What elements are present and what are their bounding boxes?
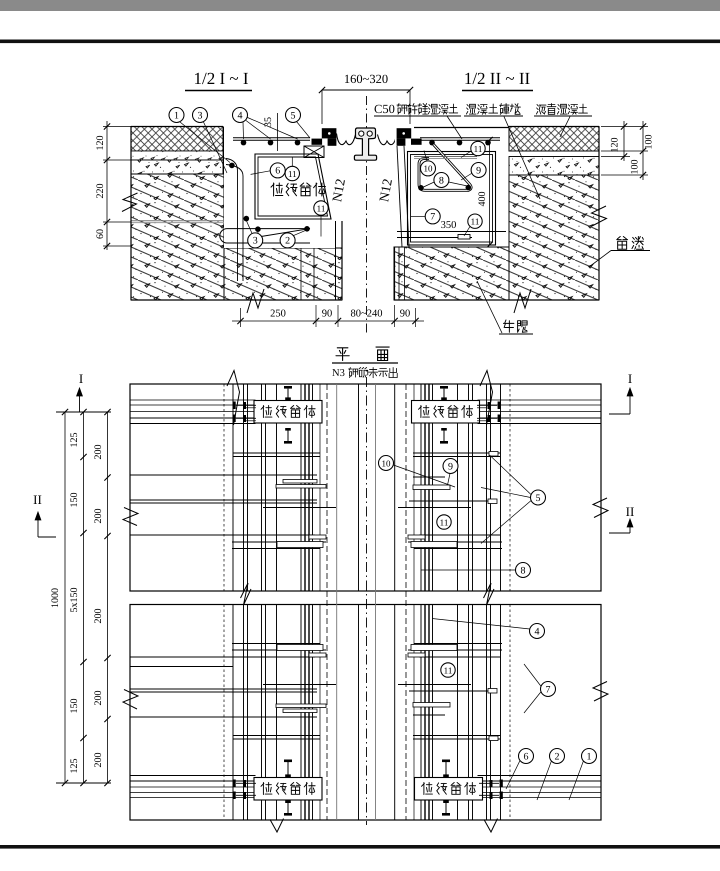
svg-text:125: 125 bbox=[69, 759, 80, 774]
svg-text:120: 120 bbox=[95, 136, 106, 151]
svg-text:11: 11 bbox=[440, 517, 449, 527]
svg-text:N12: N12 bbox=[376, 177, 395, 203]
svg-text:250: 250 bbox=[270, 309, 286, 320]
svg-text:6: 6 bbox=[275, 166, 280, 177]
svg-text:10: 10 bbox=[424, 164, 434, 174]
svg-text:5: 5 bbox=[291, 110, 296, 121]
svg-text:1/2 II ~ II: 1/2 II ~ II bbox=[464, 69, 531, 88]
svg-text:160~320: 160~320 bbox=[344, 72, 388, 86]
svg-text:9: 9 bbox=[476, 165, 481, 176]
svg-text:100: 100 bbox=[644, 135, 655, 150]
svg-text:7: 7 bbox=[546, 684, 551, 695]
svg-text:8: 8 bbox=[439, 175, 444, 186]
svg-text:11: 11 bbox=[471, 217, 480, 227]
svg-text:4: 4 bbox=[535, 626, 540, 637]
svg-text:2: 2 bbox=[555, 751, 560, 762]
svg-text:90: 90 bbox=[400, 309, 411, 320]
svg-text:10: 10 bbox=[382, 458, 392, 468]
svg-text:200: 200 bbox=[93, 445, 104, 460]
svg-text:35: 35 bbox=[263, 117, 274, 127]
svg-text:80~240: 80~240 bbox=[351, 309, 383, 320]
svg-text:11: 11 bbox=[474, 144, 483, 154]
svg-text:200: 200 bbox=[93, 753, 104, 768]
svg-text:400: 400 bbox=[477, 192, 488, 207]
svg-text:3: 3 bbox=[253, 236, 258, 247]
svg-text:N12: N12 bbox=[329, 177, 348, 203]
svg-text:5: 5 bbox=[536, 493, 541, 504]
svg-text:II: II bbox=[33, 492, 42, 507]
svg-text:I: I bbox=[628, 371, 632, 386]
svg-text:C50: C50 bbox=[374, 102, 395, 116]
svg-text:150: 150 bbox=[69, 493, 80, 508]
svg-text:4: 4 bbox=[238, 110, 243, 121]
svg-text:1: 1 bbox=[174, 110, 179, 121]
svg-text:60: 60 bbox=[95, 229, 106, 239]
svg-text:200: 200 bbox=[93, 609, 104, 624]
svg-text:125: 125 bbox=[69, 433, 80, 448]
svg-text:11: 11 bbox=[444, 665, 453, 675]
svg-text:5x150: 5x150 bbox=[69, 588, 80, 613]
svg-text:11: 11 bbox=[317, 203, 326, 213]
svg-text:350: 350 bbox=[441, 220, 457, 231]
svg-text:1000: 1000 bbox=[50, 588, 61, 608]
svg-text:I: I bbox=[79, 371, 83, 386]
svg-text:6: 6 bbox=[524, 751, 529, 762]
svg-text:N3: N3 bbox=[332, 368, 345, 379]
svg-text:3: 3 bbox=[198, 110, 203, 121]
svg-text:7: 7 bbox=[430, 212, 435, 223]
svg-text:120: 120 bbox=[610, 138, 621, 153]
svg-text:100: 100 bbox=[630, 160, 641, 175]
svg-text:11: 11 bbox=[288, 169, 297, 179]
svg-text:1/2 I ~ I: 1/2 I ~ I bbox=[194, 69, 249, 88]
svg-text:2: 2 bbox=[285, 236, 290, 247]
svg-text:200: 200 bbox=[93, 509, 104, 524]
svg-text:9: 9 bbox=[448, 461, 453, 472]
svg-text:II: II bbox=[626, 504, 635, 519]
svg-text:8: 8 bbox=[521, 565, 526, 576]
svg-text:220: 220 bbox=[95, 184, 106, 199]
svg-text:1: 1 bbox=[587, 751, 592, 762]
svg-text:90: 90 bbox=[322, 309, 333, 320]
svg-text:200: 200 bbox=[93, 691, 104, 706]
svg-text:150: 150 bbox=[69, 699, 80, 714]
